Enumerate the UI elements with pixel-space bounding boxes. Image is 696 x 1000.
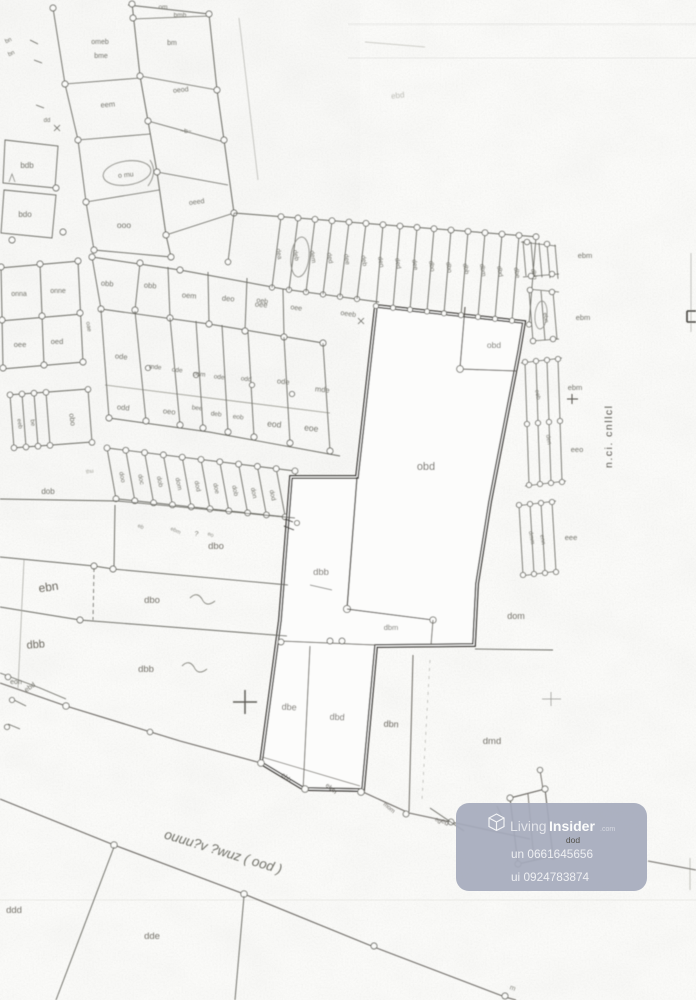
svg-text:dmd: dmd <box>483 736 501 747</box>
svg-text:dob: dob <box>41 487 55 496</box>
svg-text:ode: ode <box>171 366 183 374</box>
svg-text:obo: obo <box>67 413 78 427</box>
svg-text:eon: eon <box>10 679 22 686</box>
svg-text:dbb: dbb <box>138 664 154 675</box>
svg-text:ooo: ooo <box>117 220 131 230</box>
svg-text:dbb: dbb <box>26 638 45 652</box>
svg-text:oeo: oeo <box>163 406 176 416</box>
svg-text:bee: bee <box>191 404 203 412</box>
svg-text:onna: onna <box>11 291 27 298</box>
svg-text:mde: mde <box>315 384 330 394</box>
svg-text:dom: dom <box>507 611 525 621</box>
svg-text:ddd: ddd <box>6 905 22 916</box>
svg-text:eee: eee <box>565 533 578 542</box>
svg-text:dbd: dbd <box>329 712 345 723</box>
svg-text:eob: eob <box>232 413 244 421</box>
svg-text:~b~: ~b~ <box>180 128 191 135</box>
svg-text:ui 0924783874: ui 0924783874 <box>511 870 590 884</box>
svg-text:deb: deb <box>210 410 222 418</box>
svg-text:obd: obd <box>417 461 435 473</box>
svg-text:dod: dod <box>566 835 580 845</box>
svg-text:bm: bm <box>167 40 177 47</box>
svg-text:ebm: ebm <box>578 251 593 260</box>
svg-text:ebd: ebd <box>391 90 405 100</box>
svg-text:dd: dd <box>44 118 51 124</box>
svg-text:eoe: eoe <box>304 422 319 433</box>
svg-text:dbm: dbm <box>384 623 399 632</box>
svg-text:obb: obb <box>101 278 114 288</box>
svg-text:mde: mde <box>148 363 162 371</box>
svg-text:un 0661645656: un 0661645656 <box>511 847 593 861</box>
svg-text:odm: odm <box>192 370 205 378</box>
svg-text:deo: deo <box>222 293 235 303</box>
svg-text:Insider: Insider <box>549 818 595 834</box>
svg-text:dbb: dbb <box>313 567 329 578</box>
svg-text:dbo: dbo <box>208 541 224 552</box>
svg-text:bmb: bmb <box>174 12 187 19</box>
svg-text:eod: eod <box>267 418 282 429</box>
svg-text:dde: dde <box>144 931 160 942</box>
svg-text:eeo: eeo <box>571 445 584 454</box>
svg-text:ebn: ebn <box>38 579 60 596</box>
svg-text:n.ci. cnllcl: n.ci. cnllcl <box>603 404 615 468</box>
svg-text:odd: odd <box>117 402 130 412</box>
svg-text:ebm: ebm <box>568 383 583 392</box>
svg-text:oed: oed <box>51 337 64 346</box>
svg-text:odd: odd <box>240 375 252 383</box>
svg-text:om: om <box>158 4 167 11</box>
svg-text:omeb: omeb <box>91 39 109 46</box>
svg-text:ode: ode <box>115 351 128 361</box>
svg-text:dbe: dbe <box>281 702 297 713</box>
svg-text:dbo: dbo <box>144 595 160 606</box>
svg-text:bme: bme <box>94 53 108 60</box>
svg-text:bdo: bdo <box>18 210 32 219</box>
svg-text:oee: oee <box>14 340 27 349</box>
svg-text:obb: obb <box>144 280 157 290</box>
svg-text:eem: eem <box>100 100 115 110</box>
svg-text:oem: oem <box>182 290 197 300</box>
svg-text:.com: .com <box>600 826 615 833</box>
svg-text:dbn: dbn <box>383 719 399 730</box>
svg-text:ode: ode <box>277 376 290 386</box>
svg-text:onne: onne <box>50 288 66 295</box>
svg-text:Living: Living <box>510 818 547 834</box>
svg-text:ebm: ebm <box>576 313 591 322</box>
svg-text:ode: ode <box>213 373 225 381</box>
svg-text:obd: obd <box>487 340 501 350</box>
svg-text:bdb: bdb <box>20 161 34 170</box>
